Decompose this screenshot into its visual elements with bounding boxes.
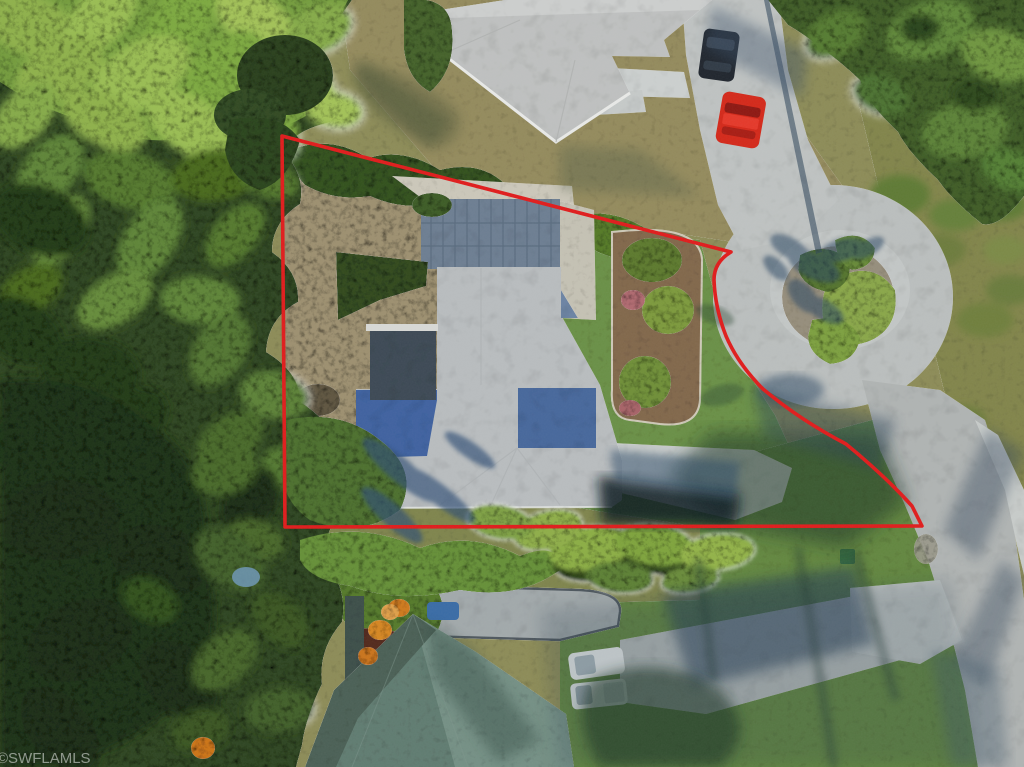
svg-text:©SWFLAMLS: ©SWFLAMLS — [0, 750, 91, 767]
